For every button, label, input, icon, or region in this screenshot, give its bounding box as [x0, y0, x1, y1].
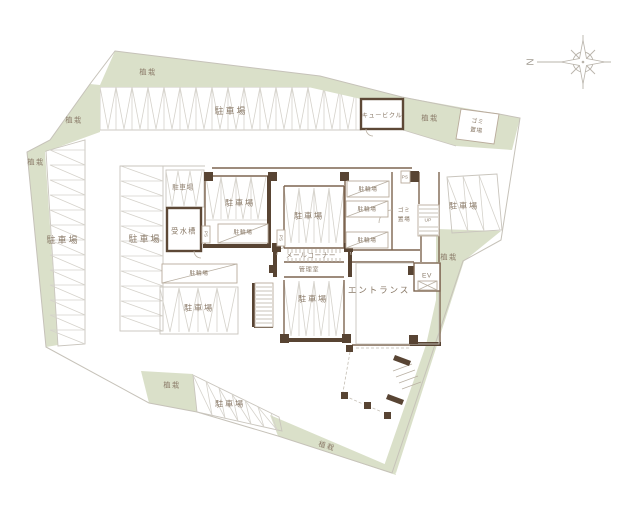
parking-label-room-c: 駐車場 — [298, 294, 328, 304]
parking-label-sw: 駐車場 — [184, 303, 214, 313]
planting-west-wedge — [27, 84, 100, 152]
column — [280, 334, 289, 343]
bicycle-label-r1: 駐輪場 — [359, 185, 378, 193]
column — [269, 265, 277, 273]
building-walls — [120, 166, 441, 348]
approach-edge-dashed — [343, 352, 382, 412]
compass-rose: N — [524, 35, 612, 89]
parking-label-east: 駐車場 — [449, 201, 479, 211]
compass-center-dot — [582, 61, 585, 64]
planting-southwest — [141, 371, 197, 412]
stall-sawtooth — [50, 150, 85, 344]
column — [410, 171, 419, 182]
planting-label-east: 植栽 — [440, 253, 457, 262]
planting-label-west-strip: 植栽 — [27, 158, 44, 167]
planting-label-sw: 植栽 — [163, 381, 180, 390]
bicycle-label-r2: 駐輪場 — [358, 205, 377, 213]
pipe-space-label-c: PS — [402, 175, 408, 180]
bicycle-label-r3: 駐輪場 — [358, 236, 377, 244]
planting-label-top: 植栽 — [139, 68, 156, 77]
stall-dividers — [299, 281, 329, 336]
column — [268, 172, 277, 181]
garbage-label-center-line1: ゴミ — [398, 206, 411, 214]
parking-label-col2: 駐車場 — [128, 233, 161, 244]
planting-label-west-wedge: 植栽 — [65, 116, 82, 125]
site-plan: N 植栽 駐車場 キュービクル 植栽 ゴミ 置場 植栽 植栽 駐車場 駐車場 受… — [0, 0, 640, 512]
water-tank-label: 受水槽 — [171, 227, 197, 236]
parking-stalls-col2 — [120, 166, 163, 331]
column — [340, 172, 349, 181]
stairs-west — [255, 283, 273, 327]
garbage-label-center-line2: 置場 — [398, 215, 411, 223]
site-plan-svg: N 植栽 駐車場 キュービクル 植栽 ゴミ 置場 植栽 植栽 駐車場 駐車場 受… — [0, 0, 640, 512]
manager-room-label: 管理室 — [299, 266, 319, 274]
column — [204, 172, 213, 181]
stall-sawtooth — [121, 166, 163, 331]
north-label: N — [524, 58, 535, 65]
parking-stalls-room-c — [284, 281, 344, 336]
parking-label-west: 駐車場 — [46, 234, 79, 245]
pipe-space-label-a: PS — [204, 231, 209, 237]
mail-corner-label: メールコーナー — [286, 252, 336, 260]
pipe-space-label-b: PS — [279, 235, 284, 241]
approach-post — [341, 392, 348, 399]
approach-post — [364, 402, 371, 409]
up-label: UP — [424, 218, 431, 224]
parking-label-small: 駐車場 — [172, 183, 194, 192]
entrance-label: エントランス — [348, 285, 410, 295]
bicycle-label-a: 駐輪場 — [234, 228, 253, 236]
approach-wall-b — [386, 394, 404, 405]
cubicle-label: キュービクル — [362, 112, 403, 120]
approach-post — [346, 345, 353, 352]
stairwell — [255, 283, 273, 327]
garbage-area-ne — [456, 109, 499, 144]
parking-label-south-slant: 駐車場 — [215, 399, 245, 409]
column — [409, 335, 418, 344]
parking-label-room-a: 駐車場 — [225, 198, 255, 208]
planting-label-topright: 植栽 — [421, 114, 438, 123]
column — [342, 334, 351, 343]
elevator-label: EV — [422, 273, 432, 280]
approach-wall-a — [393, 355, 411, 366]
bicycle-label-b: 駐輪場 — [190, 269, 209, 277]
parking-label-room-b: 駐車場 — [294, 211, 324, 221]
approach-post — [384, 412, 391, 419]
parking-label-top: 駐車場 — [214, 105, 247, 116]
planting-east-band — [384, 229, 501, 473]
